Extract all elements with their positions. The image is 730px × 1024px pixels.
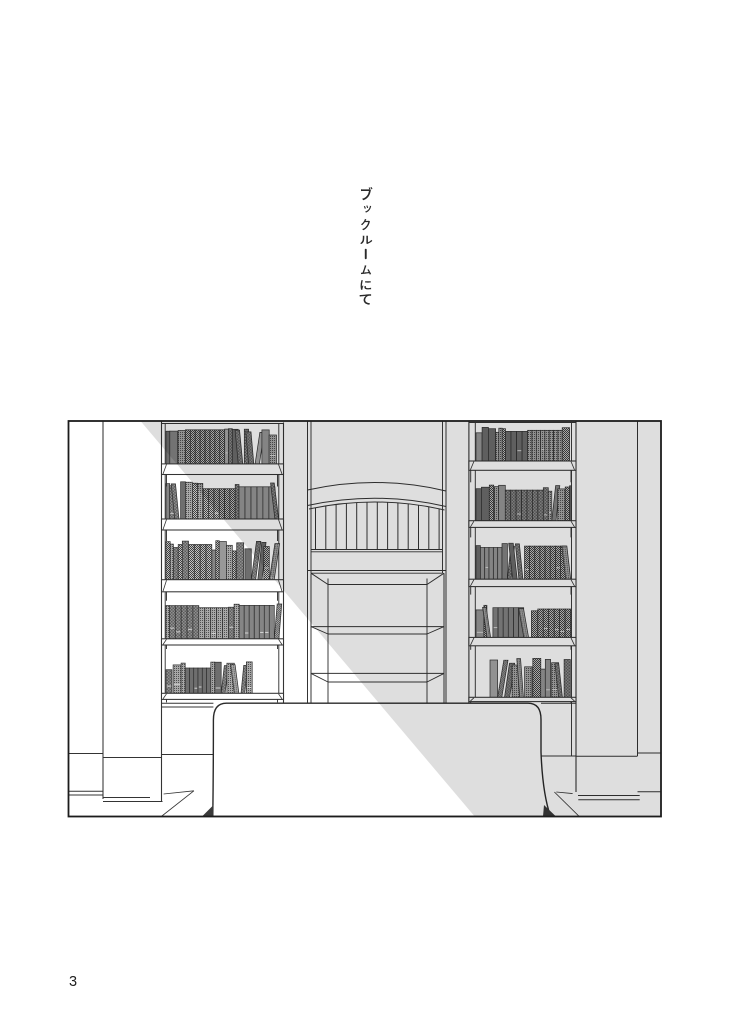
svg-text:3: 3: [69, 974, 77, 990]
